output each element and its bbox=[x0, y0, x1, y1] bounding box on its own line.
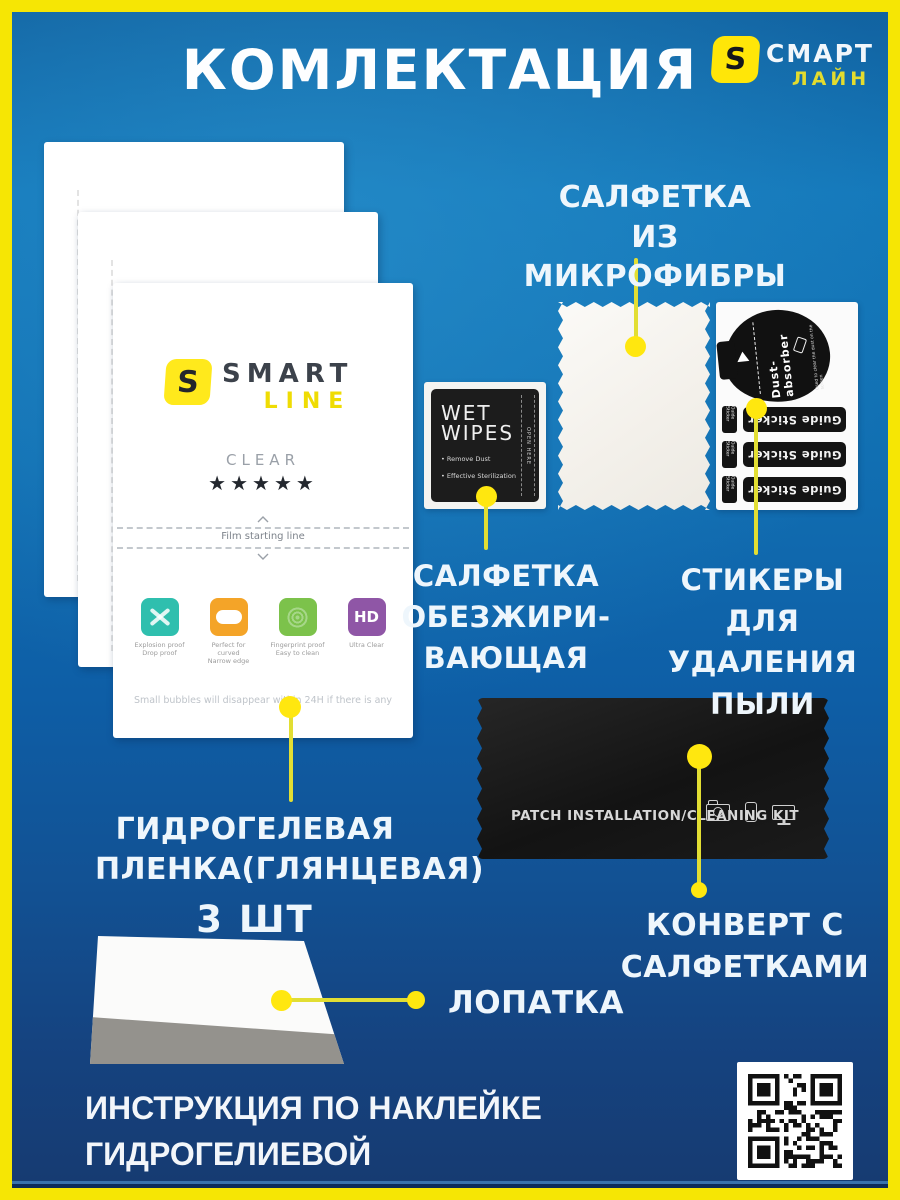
brand-logo-letter: S bbox=[723, 42, 747, 77]
callout-dot-envelope-end bbox=[691, 882, 707, 898]
feature-fingerprint-proof: Fingerprint proof Easy to clean bbox=[270, 598, 326, 665]
film-logo-letter: S bbox=[176, 365, 200, 400]
label-dust-stickers: СТИКЕРЫ ДЛЯ УДАЛЕНИЯ ПЫЛИ bbox=[640, 560, 885, 725]
feature-ultra-clear: HD Ultra Clear bbox=[339, 598, 395, 665]
guide-sticker-row: Guide Sticker Guide Sticker bbox=[716, 441, 858, 468]
film-features: Explosion proof Drop proof Perfect for c… bbox=[113, 598, 413, 665]
film-type-label: CLEAR bbox=[113, 451, 413, 469]
tools-icon bbox=[141, 598, 179, 636]
chevron-down-icon bbox=[257, 553, 269, 560]
callout-dot-film bbox=[279, 696, 301, 718]
hd-icon: HD bbox=[348, 598, 386, 636]
film-quantity: 3 ШТ bbox=[95, 896, 415, 945]
guide-sticker-row: Guide Sticker Guide Sticker bbox=[716, 406, 858, 433]
device-icons bbox=[706, 802, 795, 822]
callout-line-envelope bbox=[697, 760, 701, 888]
brand-name: СМАРТ ЛАЙН bbox=[766, 39, 874, 90]
page-title: КОМЛЕКТАЦИЯ bbox=[60, 38, 820, 102]
brand-name-bottom: ЛАЙН bbox=[766, 68, 874, 90]
fingerprint-icon bbox=[279, 598, 317, 636]
dust-absorber-label: Dust-absorber bbox=[762, 313, 797, 399]
film-logo-icon: S bbox=[163, 359, 212, 405]
product-infographic: КОМЛЕКТАЦИЯ S СМАРТ ЛАЙН S SMART LINE CL… bbox=[0, 0, 900, 1200]
film-brand-top: SMART bbox=[222, 359, 353, 389]
qr-code bbox=[737, 1062, 853, 1180]
bubbles-note: Small bubbles will disappear within 24H … bbox=[113, 695, 413, 706]
rating-stars: ★★★★★ bbox=[113, 471, 413, 495]
callout-dot-spatula-end bbox=[407, 991, 425, 1009]
callout-dot-envelope bbox=[687, 744, 712, 769]
open-here-strip: OPEN HERE bbox=[521, 395, 535, 496]
guide-sticker-row: Guide Sticker Guide Sticker bbox=[716, 476, 858, 503]
footer-line-1: ИНСТРУКЦИЯ ПО НАКЛЕЙКЕ ГИДРОГЕЛИЕВОЙ bbox=[85, 1085, 740, 1177]
dust-absorber-sticker: Dust-absorber Used to clear the dust on … bbox=[719, 305, 834, 408]
label-hydrogel-film: ГИДРОГЕЛЕВАЯ ПЛЕНКА(ГЛЯНЦЕВАЯ) 3 ШТ bbox=[95, 810, 415, 945]
chevron-up-icon bbox=[257, 516, 269, 523]
callout-dot-stickers bbox=[746, 398, 767, 419]
spatula-felt-edge bbox=[74, 1016, 359, 1091]
phone-outline-icon bbox=[793, 336, 807, 353]
label-spatula: ЛОПАТКА bbox=[448, 983, 624, 1024]
feature-explosion-proof: Explosion proof Drop proof bbox=[132, 598, 188, 665]
callout-line-wipe bbox=[484, 500, 488, 550]
film-sheet-front: S SMART LINE CLEAR ★★★★★ Film starting l… bbox=[113, 283, 413, 738]
film-starting-line-label: Film starting line bbox=[113, 531, 413, 542]
callout-dot-spatula bbox=[271, 990, 292, 1011]
label-microfiber: САЛФЕТКА ИЗ МИКРОФИБРЫ bbox=[505, 178, 805, 297]
curved-edge-icon bbox=[210, 598, 248, 636]
smartphone-icon bbox=[745, 802, 757, 822]
callout-line-stickers bbox=[754, 408, 758, 555]
film-brand-block: S SMART LINE bbox=[165, 359, 353, 414]
brand-name-top: СМАРТ bbox=[766, 39, 874, 68]
film-starting-line-bottom bbox=[117, 547, 409, 549]
feature-curved-edge: Perfect for curved Narrow edge bbox=[201, 598, 257, 665]
callout-dot-microfiber bbox=[625, 336, 646, 357]
bottom-seam-dark bbox=[12, 1184, 888, 1188]
camera-icon bbox=[706, 804, 730, 821]
film-brand-words: SMART LINE bbox=[222, 359, 353, 414]
callout-line-spatula bbox=[281, 998, 417, 1002]
label-degreasing-wipe: САЛФЕТКА ОБЕЗЖИРИ- ВАЮЩАЯ bbox=[400, 556, 612, 680]
monitor-icon bbox=[772, 805, 795, 820]
dust-sticker-sheet: Dust-absorber Used to clear the dust on … bbox=[716, 302, 858, 510]
triangle-icon bbox=[736, 351, 749, 362]
brand-logo-icon: S bbox=[710, 36, 760, 83]
callout-dot-wipe bbox=[476, 486, 497, 507]
callout-line-film bbox=[289, 707, 293, 802]
label-envelope: КОНВЕРТ С САЛФЕТКАМИ bbox=[605, 905, 885, 989]
film-brand-bottom: LINE bbox=[222, 389, 353, 414]
dust-absorber-note: Used to clear the dust on the screen bbox=[808, 314, 826, 391]
film-starting-line-top bbox=[117, 527, 409, 529]
